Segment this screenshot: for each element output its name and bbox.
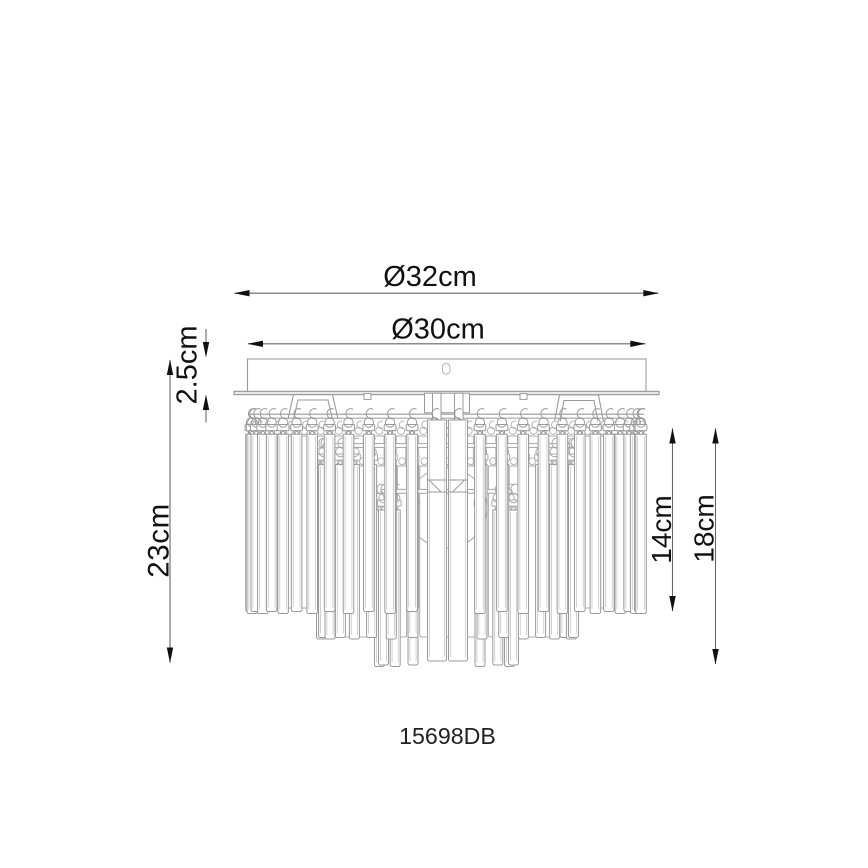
svg-text:Ø32cm: Ø32cm [383,261,476,293]
svg-text:18cm: 18cm [689,494,720,562]
svg-text:23cm: 23cm [143,503,176,578]
svg-text:Ø30cm: Ø30cm [391,314,484,346]
svg-text:2.5cm: 2.5cm [172,326,204,405]
svg-text:14cm: 14cm [646,495,677,563]
svg-text:15698DB: 15698DB [399,723,496,749]
